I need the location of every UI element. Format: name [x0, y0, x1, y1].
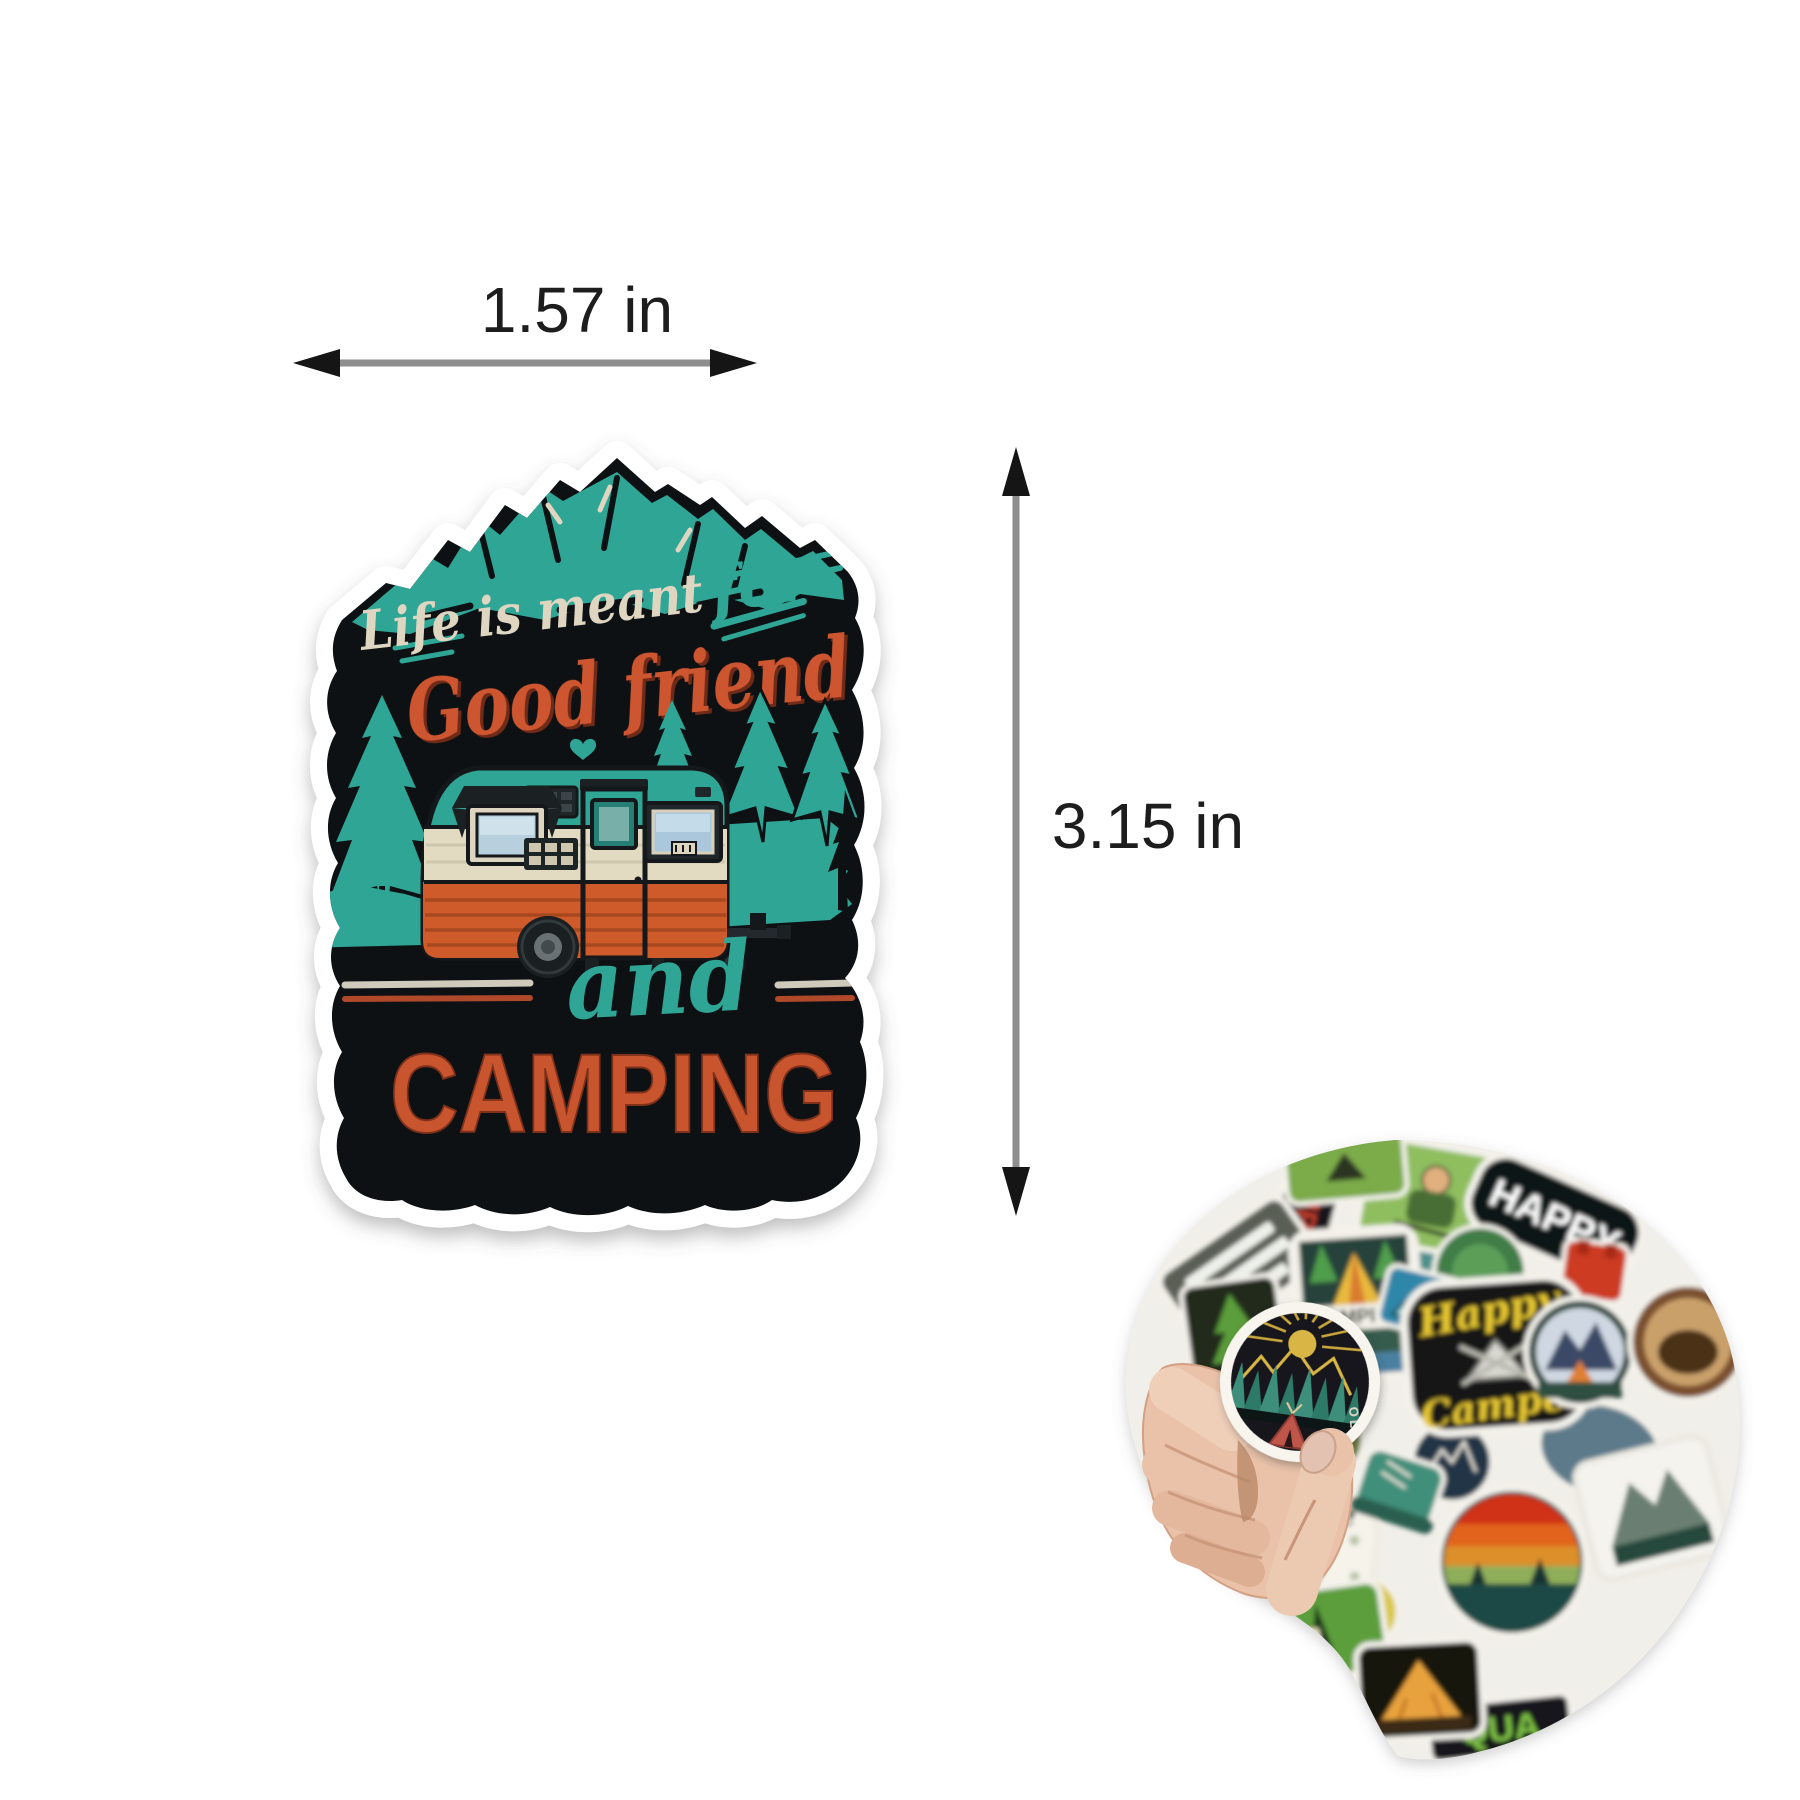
sticker-conjunction: and — [563, 919, 754, 1042]
camper-plate — [672, 842, 696, 855]
sticker-line3: CAMPING — [390, 1031, 838, 1156]
camping-sticker: Life is meant for Good friend — [300, 458, 866, 1215]
pile-sticker-bear — [1630, 1284, 1746, 1400]
scene: 1.57 in 3.15 in — [0, 0, 1800, 1800]
sticker-pile: CAMPING — [1110, 1125, 1746, 1763]
height-arrow-icon — [1002, 447, 1030, 1216]
width-dimension: 1.57 in — [293, 274, 757, 377]
camper-band-window — [524, 838, 578, 870]
pile-sticker-red-round — [1224, 1614, 1312, 1702]
pile-sticker-orange-tent — [1356, 1639, 1485, 1741]
pile-sticker-mountain-badge — [1526, 1298, 1634, 1406]
pile-sticker-green-doodle — [1282, 1125, 1408, 1205]
height-dimension: 3.15 in — [1002, 447, 1244, 1216]
product-photo: 1.57 in 3.15 in — [0, 0, 1800, 1800]
width-arrow-icon — [293, 349, 757, 377]
height-dimension-label: 3.15 in — [1052, 790, 1244, 862]
width-dimension-label: 1.57 in — [481, 274, 673, 346]
pile-sticker-sunset — [1438, 1488, 1586, 1636]
